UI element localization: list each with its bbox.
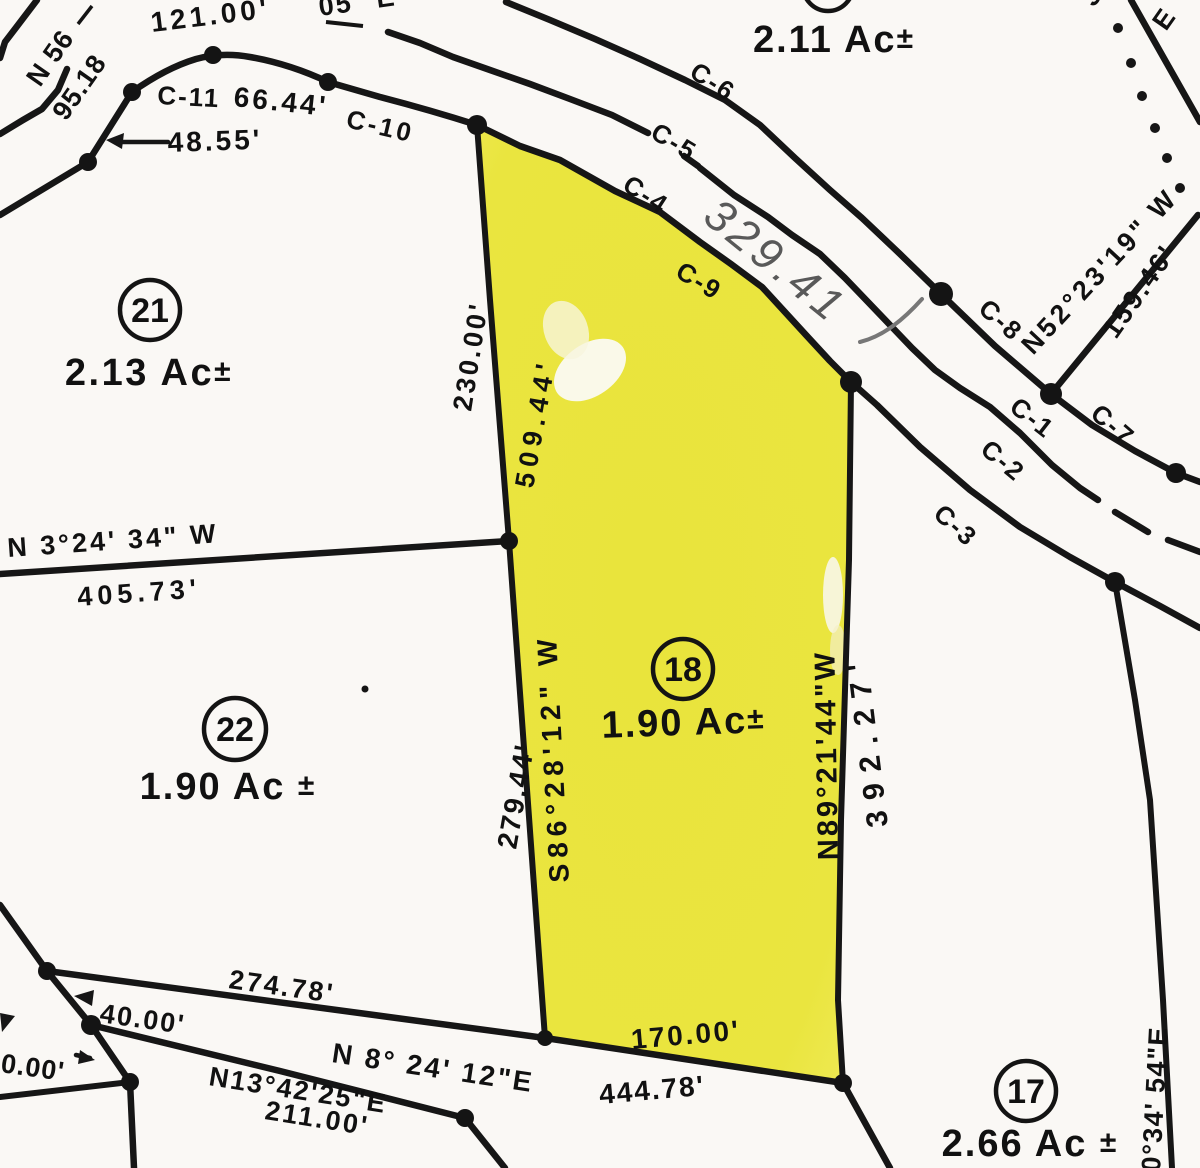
svg-text:2.66 Ac ±: 2.66 Ac ± [942,1123,1119,1165]
svg-text:48.55': 48.55' [167,124,263,158]
svg-text:22: 22 [216,711,254,749]
svg-text:17: 17 [1007,1073,1045,1111]
svg-text:1.90 Ac±: 1.90 Ac± [601,699,767,747]
svg-text:18: 18 [664,651,702,689]
svg-text:1.90 Ac ±: 1.90 Ac ± [140,766,317,808]
svg-text:2.13 Ac±: 2.13 Ac± [65,352,233,394]
svg-text:C-11: C-11 [157,80,221,113]
svg-text:2.11 Ac±: 2.11 Ac± [753,19,915,61]
svg-text:21: 21 [131,292,169,330]
svg-text:N89°21'44"W: N89°21'44"W [809,650,845,861]
